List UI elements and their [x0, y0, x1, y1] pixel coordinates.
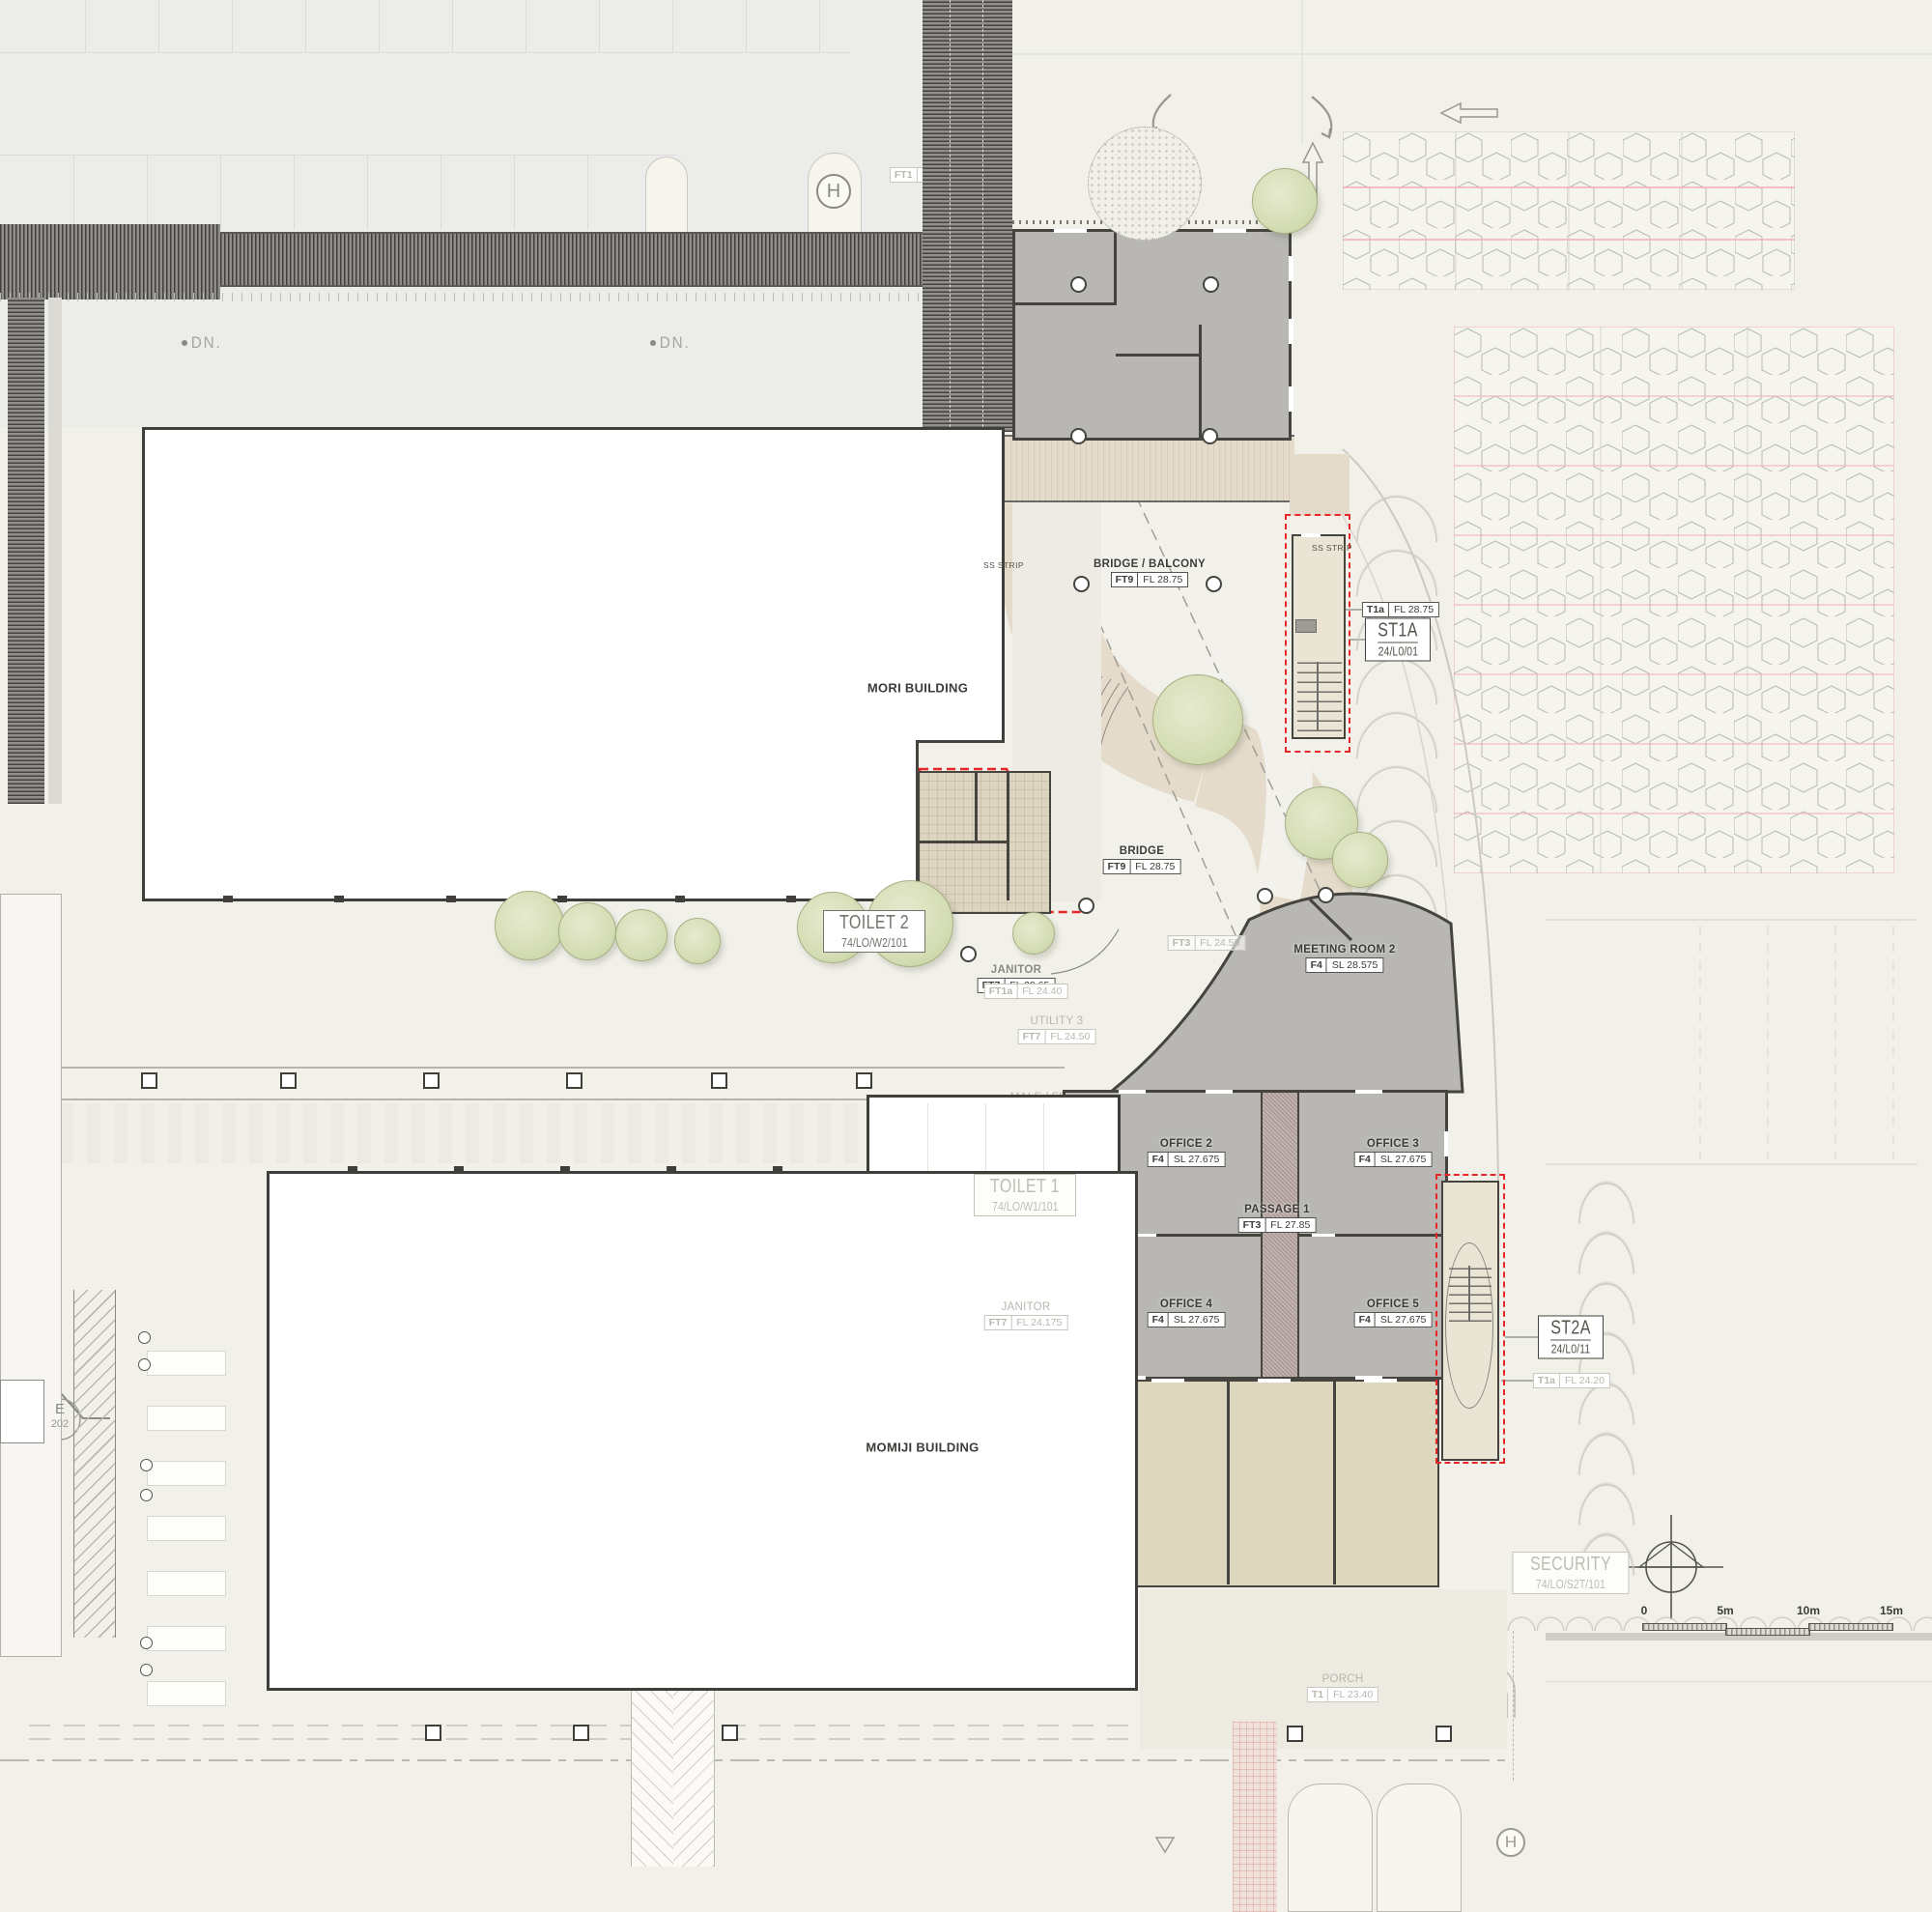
tree [495, 891, 564, 960]
road-edge-left [48, 298, 62, 804]
dn-note: DN. [660, 333, 691, 353]
dn-dot [650, 340, 656, 346]
scale-bar: 0 5m 10m 15m [1642, 1604, 1903, 1642]
st2a-red-boundary [1435, 1174, 1505, 1464]
groundcover-circle [1088, 127, 1202, 241]
covered-walkway-left-block [0, 224, 220, 300]
tree [558, 902, 616, 960]
ss-strip-note: SS STRIP [983, 560, 1024, 570]
hydrant-symbol: H [816, 174, 851, 209]
section-marker-letter: E [46, 1401, 73, 1417]
service-rooms-block [1121, 1380, 1439, 1587]
tree [797, 892, 868, 963]
crosswalk-band [631, 1681, 715, 1867]
west-structure [0, 894, 62, 1657]
site-plan: FT1300X [0, 0, 1932, 1912]
porch-area [1140, 1589, 1507, 1749]
bridge-link-strip [923, 0, 1012, 432]
dn-dot [182, 340, 187, 346]
hydrant-symbol: H [1496, 1828, 1525, 1857]
pink-tile-strip [1233, 1722, 1277, 1912]
service-road-dashes [1513, 1631, 1514, 1781]
parking-arch-bay [645, 157, 688, 232]
tree [615, 909, 668, 961]
tree [1152, 674, 1243, 765]
north-wing-building [1012, 229, 1292, 441]
dn-note: DN. [191, 333, 222, 353]
court-structure [1288, 1784, 1373, 1912]
tree [867, 880, 953, 967]
mori-notch-wall [916, 740, 1005, 743]
road-line-southeast [1546, 1681, 1932, 1682]
tree [1332, 832, 1388, 888]
tree [674, 918, 721, 964]
section-marker-number: 202 [43, 1418, 77, 1430]
west-small-structure [0, 1380, 44, 1443]
planting-hex-zone-north [1343, 131, 1795, 290]
st1a-corridor-floor [1290, 454, 1350, 516]
passage-strip [1261, 1093, 1299, 1377]
balcony-floor [1005, 435, 1294, 502]
court-structure [1377, 1784, 1462, 1912]
ss-strip-note: SS STRIP [1312, 543, 1352, 553]
mori-building [142, 427, 1005, 901]
tree [1252, 168, 1318, 234]
road-hatch-left [8, 298, 44, 804]
momiji-building [267, 1171, 1138, 1691]
walkway-edge-ticks [0, 293, 925, 301]
parking-area-top-left [0, 0, 929, 427]
colonnade-line-upper [60, 1067, 1065, 1069]
momiji-upper-extension [867, 1095, 1121, 1177]
hatched-ramp-band [73, 1290, 116, 1638]
tree [1012, 912, 1055, 955]
mori-notch-wall [916, 740, 919, 901]
arch-bays-st2a-east [1575, 1174, 1638, 1589]
